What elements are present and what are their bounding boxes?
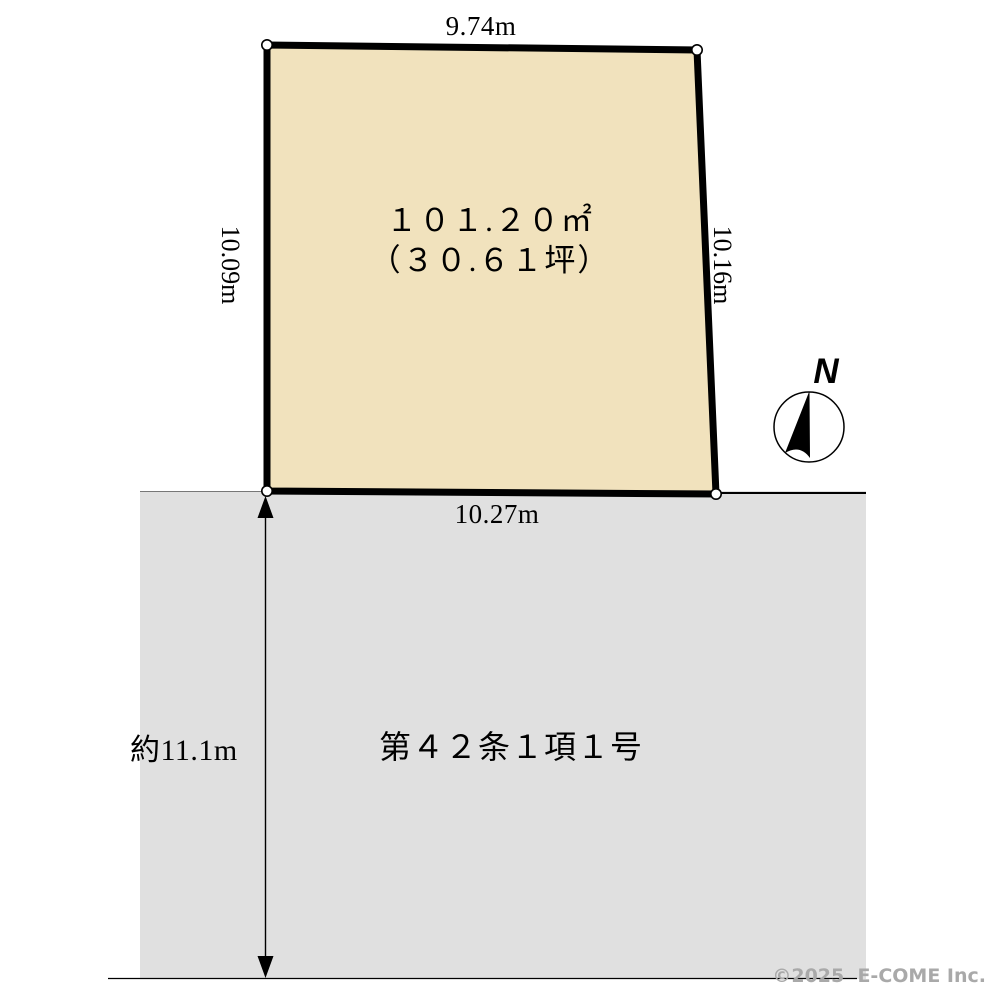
road-classification-label: 第４２条１項１号: [361, 722, 661, 768]
dimension-top: 9.74m: [381, 11, 581, 42]
vertex-marker-top-right: [692, 45, 702, 55]
site-plan-diagram: 9.74m 10.09m 10.16m 10.27m １０１.２０㎡ （３０.６…: [0, 0, 1000, 1000]
dimension-left: 10.09m: [217, 205, 245, 325]
lot-area-label: １０１.２０㎡ （３０.６１坪）: [340, 201, 640, 281]
lot-area-sqm: １０１.２０㎡: [340, 201, 640, 241]
north-letter: N: [796, 352, 856, 392]
dimension-bottom: 10.27m: [397, 499, 597, 530]
copyright-text: ©2025 E-COME Inc.: [772, 965, 986, 987]
vertex-marker-bottom-left: [262, 486, 272, 496]
vertex-marker-bottom-right: [711, 489, 721, 499]
dimension-right: 10.16m: [709, 205, 737, 325]
lot-area-tsubo: （３０.６１坪）: [340, 241, 640, 281]
north-compass-icon: [774, 392, 844, 462]
road-width-label: 約11.1m: [130, 725, 238, 769]
vertex-marker-top-left: [262, 40, 272, 50]
